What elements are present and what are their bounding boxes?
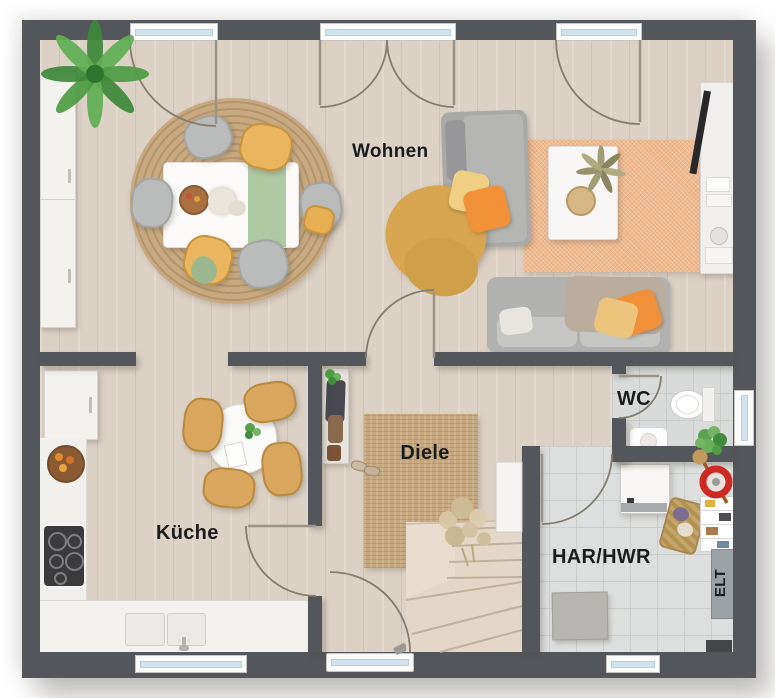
sink-basin [125,613,165,646]
books [706,177,730,192]
kitchen-chair-wood [201,465,257,510]
laundry-clothes [671,505,690,523]
cabinet-handle [68,269,71,283]
fruit [55,453,63,461]
fruit [194,196,200,202]
terrace-door-window-1 [130,23,218,41]
books [706,194,732,207]
interior-wall-living-bottom [434,352,733,366]
room-label-elt: ELT [712,563,734,603]
tall-cabinet [40,72,76,328]
cabinet-handle [68,169,71,183]
wc-window [734,390,754,446]
room-label-har-hwr: HAR/HWR [552,546,651,569]
interior-wall-kitchen-right-upper [308,366,322,526]
burner [67,534,82,549]
exterior-wall-left [22,20,40,678]
interior-wall-kitchen-top-left [40,352,136,366]
faucet [179,645,189,651]
room-label-diele: Diele [380,442,470,465]
room-label-wohnen: Wohnen [352,141,428,163]
books [705,247,733,264]
room-label-wc: WC [617,388,651,411]
wardrobe-console [322,368,349,464]
cooktop [44,526,84,586]
har-window [606,655,660,673]
shelf-line [701,510,735,511]
washing-machine [620,464,670,514]
dried-flower-centerpiece [228,200,246,216]
fruit-bowl [47,445,85,483]
burner [54,572,67,585]
interior-wall-kitchen-top-right [228,352,366,366]
shelf-item [706,527,718,535]
interior-wall-kitchen-right-lower [308,596,322,652]
shelf-item [717,541,729,548]
notepad [224,441,248,468]
exterior-wall-right [733,20,756,678]
terrace-double-door-window [320,23,456,41]
interior-wall-har-left [522,446,540,652]
toilet-seat [676,395,699,414]
tv-lowboard [700,82,734,274]
fruit [59,464,67,472]
terrace-door-window-3 [556,23,642,41]
fruit-bowl-on-table [179,185,209,215]
fruit [186,193,192,199]
burner [49,554,64,569]
hallway-jute-rug [364,414,478,568]
table-runner [248,163,286,247]
burner [65,552,84,571]
entry-door-glass [331,659,409,666]
laundry-clothes [676,521,695,539]
burner [48,532,67,551]
cabinet-divider [41,199,75,200]
shelf-item [705,500,715,507]
hanging-coat-brown [328,415,343,443]
shelf-line [701,524,735,525]
fridge-handle [89,397,92,413]
entry-door [326,653,414,672]
storage-shelf [700,496,736,552]
wall-niche [706,640,732,652]
toilet-bowl [670,390,706,419]
decor-tray [566,186,596,216]
candle [710,227,728,245]
sink-basin [167,613,206,646]
interior-wall-wc-left-stub [612,366,626,374]
shelf-line [701,538,735,539]
fruit [66,456,74,464]
boots [327,445,341,461]
kitchen-window [135,655,247,673]
washer-door [621,503,667,512]
kitchen-counter-bottom [40,600,308,653]
white-pillow [498,306,533,336]
storage-cube [552,592,609,641]
room-label-kueche: Küche [156,522,219,545]
floor-plan: Wohnen Küche Diele WC HAR/HWR ELT [0,0,775,698]
interior-wall-wc-bottom [612,446,733,462]
shelf-item [719,513,731,521]
kitchen-cabinet-fridge [44,370,98,440]
toilet-cistern [702,387,715,422]
